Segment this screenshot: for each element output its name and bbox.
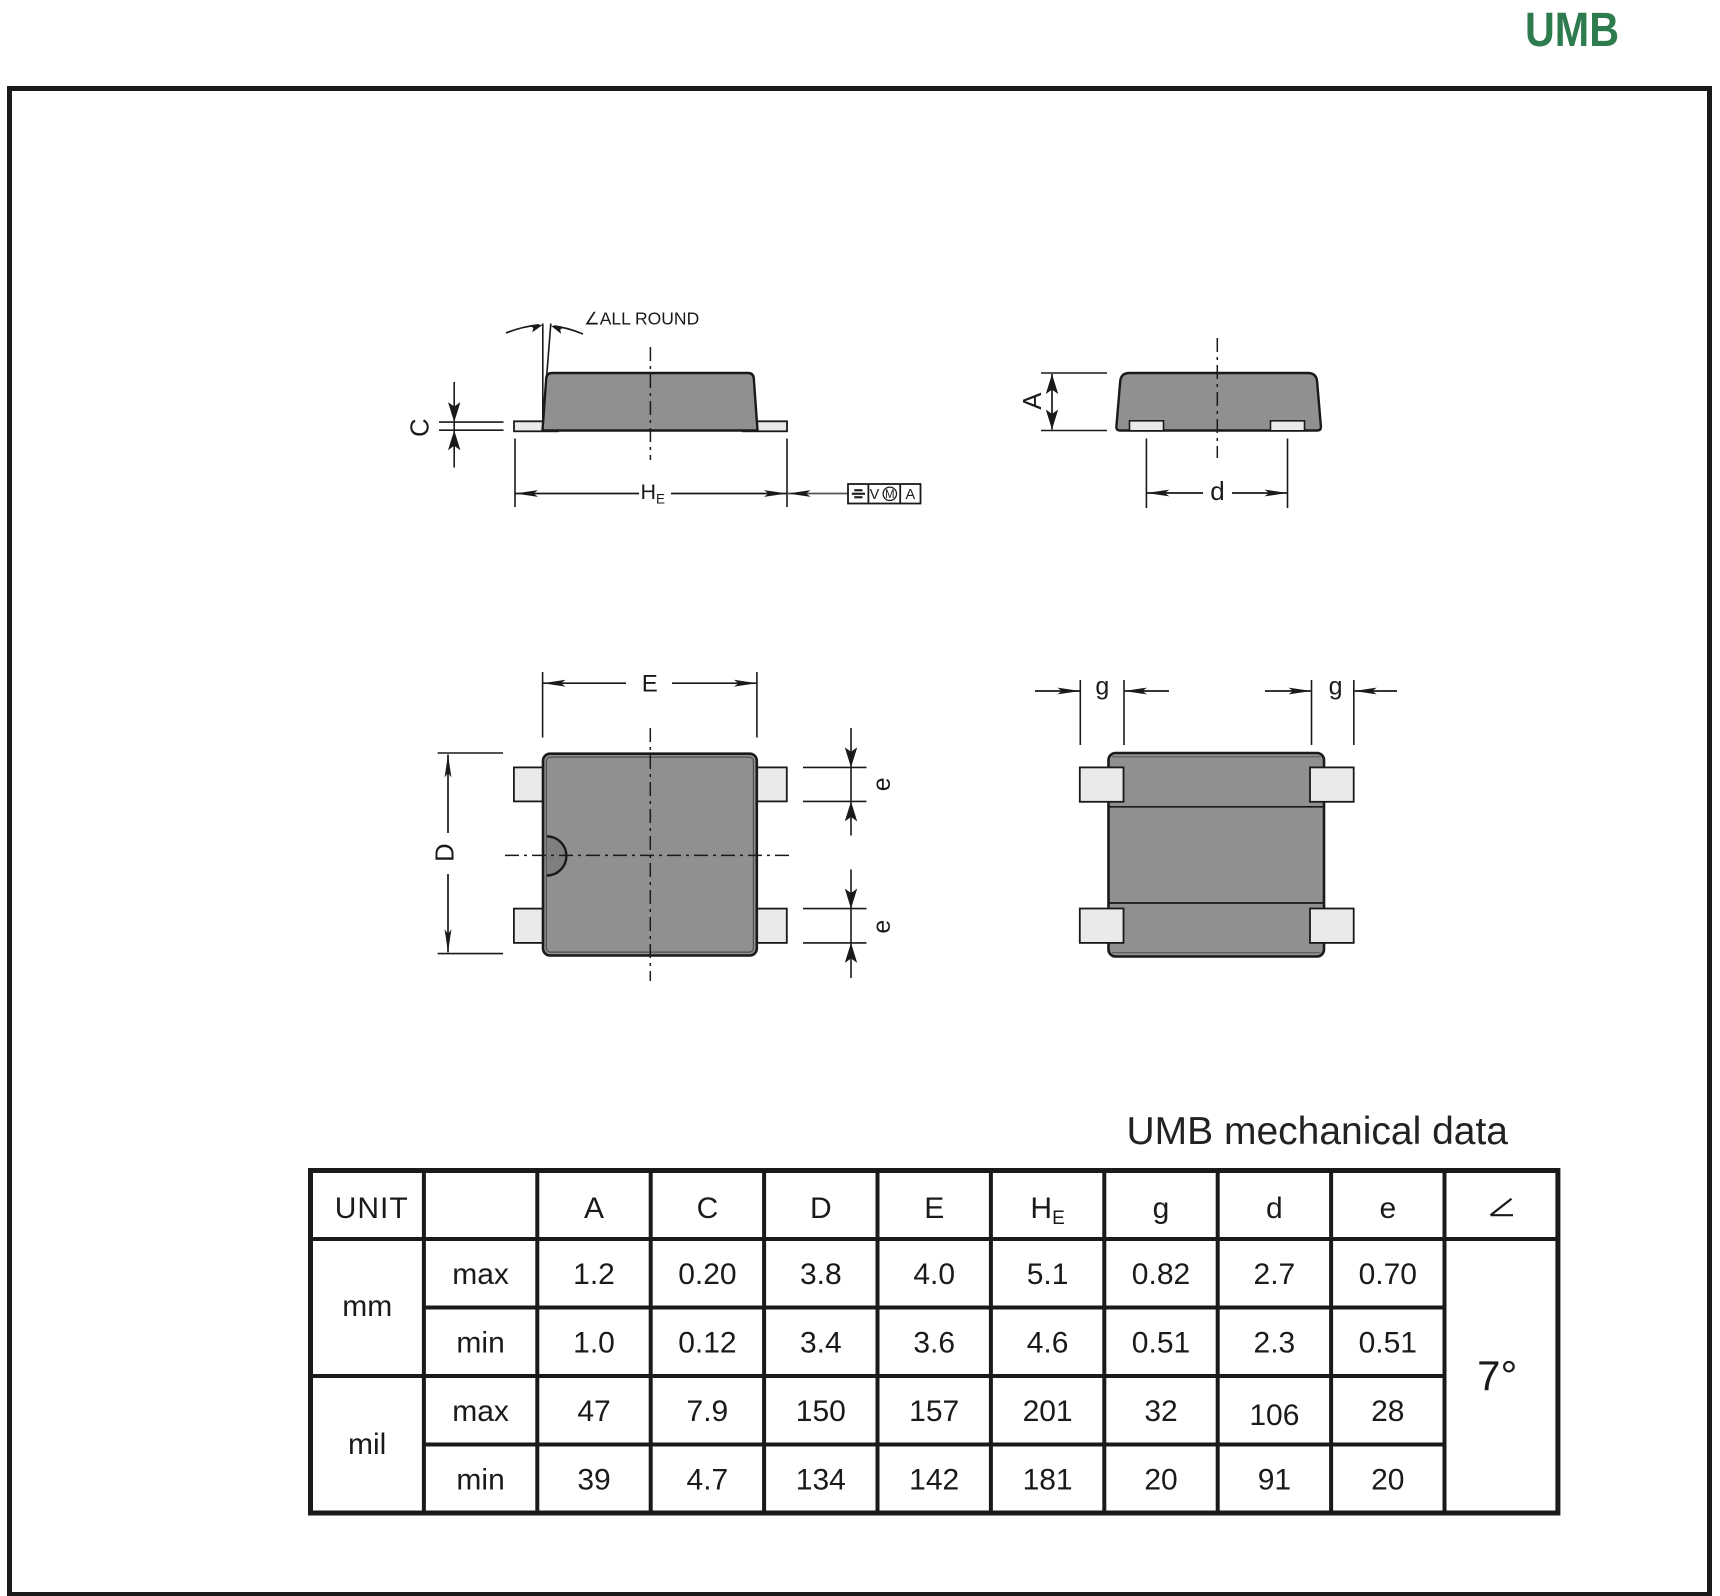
svg-text:181: 181 bbox=[1023, 1464, 1073, 1497]
svg-text:3.4: 3.4 bbox=[800, 1327, 842, 1360]
svg-text:e: e bbox=[1379, 1192, 1396, 1225]
svg-text:UNIT: UNIT bbox=[335, 1192, 409, 1225]
svg-text:mil: mil bbox=[348, 1428, 386, 1461]
svg-text:D: D bbox=[432, 843, 460, 861]
svg-text:7.9: 7.9 bbox=[687, 1395, 729, 1428]
svg-text:3.8: 3.8 bbox=[800, 1258, 842, 1291]
svg-text:UMB mechanical data: UMB mechanical data bbox=[1126, 1110, 1508, 1153]
svg-text:201: 201 bbox=[1023, 1395, 1073, 1428]
svg-text:C: C bbox=[697, 1192, 719, 1225]
svg-text:0.51: 0.51 bbox=[1359, 1327, 1417, 1360]
svg-text:E: E bbox=[642, 670, 658, 697]
svg-text:0.12: 0.12 bbox=[678, 1327, 736, 1360]
svg-text:D: D bbox=[810, 1192, 832, 1225]
svg-text:∠ALL ROUND: ∠ALL ROUND bbox=[584, 309, 699, 329]
svg-text:max: max bbox=[452, 1258, 509, 1291]
svg-text:0.51: 0.51 bbox=[1132, 1327, 1190, 1360]
svg-text:32: 32 bbox=[1144, 1395, 1177, 1428]
svg-text:91: 91 bbox=[1258, 1464, 1291, 1497]
svg-text:20: 20 bbox=[1371, 1464, 1404, 1497]
svg-text:A: A bbox=[905, 487, 915, 503]
svg-text:d: d bbox=[1210, 476, 1224, 506]
svg-text:mm: mm bbox=[342, 1290, 392, 1323]
svg-text:28: 28 bbox=[1371, 1395, 1404, 1428]
svg-text:V: V bbox=[870, 487, 880, 503]
svg-text:d: d bbox=[1266, 1192, 1283, 1225]
svg-text:0.20: 0.20 bbox=[678, 1258, 736, 1291]
svg-text:7°: 7° bbox=[1477, 1352, 1517, 1399]
svg-text:157: 157 bbox=[909, 1395, 959, 1428]
svg-text:g: g bbox=[1329, 672, 1343, 700]
svg-text:150: 150 bbox=[796, 1395, 846, 1428]
svg-text:M: M bbox=[885, 489, 895, 501]
svg-text:0.70: 0.70 bbox=[1359, 1258, 1417, 1291]
svg-text:39: 39 bbox=[577, 1464, 610, 1497]
svg-text:max: max bbox=[452, 1395, 509, 1428]
svg-text:A: A bbox=[1019, 393, 1047, 410]
svg-text:5.1: 5.1 bbox=[1027, 1258, 1069, 1291]
svg-text:e: e bbox=[868, 777, 896, 791]
svg-text:20: 20 bbox=[1144, 1464, 1177, 1497]
svg-text:47: 47 bbox=[577, 1395, 610, 1428]
svg-text:min: min bbox=[456, 1327, 504, 1360]
svg-text:134: 134 bbox=[796, 1464, 846, 1497]
svg-text:4.0: 4.0 bbox=[913, 1258, 955, 1291]
svg-text:2.7: 2.7 bbox=[1254, 1258, 1296, 1291]
svg-text:3.6: 3.6 bbox=[913, 1327, 955, 1360]
svg-text:min: min bbox=[456, 1464, 504, 1497]
svg-text:0.82: 0.82 bbox=[1132, 1258, 1190, 1291]
svg-text:1.0: 1.0 bbox=[573, 1327, 615, 1360]
svg-text:e: e bbox=[868, 920, 896, 934]
svg-text:UMB: UMB bbox=[1525, 4, 1619, 57]
svg-text:1.2: 1.2 bbox=[573, 1258, 615, 1291]
svg-text:C: C bbox=[406, 418, 434, 436]
svg-text:142: 142 bbox=[909, 1464, 959, 1497]
svg-text:g: g bbox=[1153, 1192, 1170, 1225]
svg-text:4.7: 4.7 bbox=[687, 1464, 729, 1497]
svg-text:E: E bbox=[924, 1192, 944, 1225]
svg-text:A: A bbox=[584, 1192, 604, 1225]
svg-text:106: 106 bbox=[1249, 1399, 1299, 1432]
svg-text:4.6: 4.6 bbox=[1027, 1327, 1069, 1360]
svg-text:2.3: 2.3 bbox=[1254, 1327, 1296, 1360]
svg-text:g: g bbox=[1095, 672, 1109, 700]
